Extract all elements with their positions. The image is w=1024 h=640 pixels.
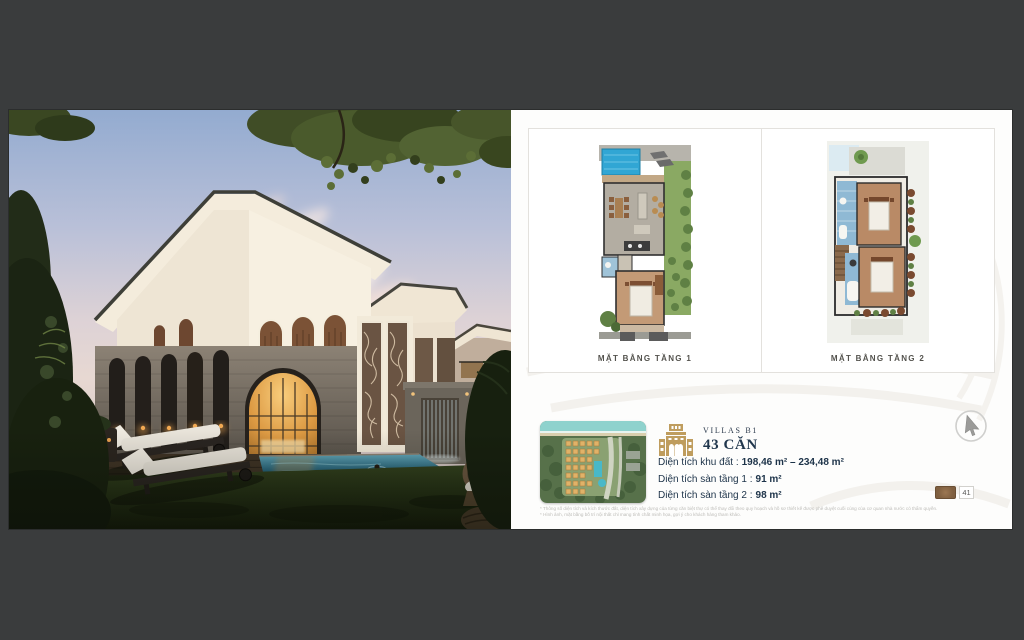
villa-photo-illustration	[9, 110, 511, 529]
brochure-slide: MẶT BẰNG TẦNG 1	[9, 110, 1012, 529]
floorplan-cell-2: MẶT BẰNG TẦNG 2	[761, 129, 994, 372]
disclaimer-line-2: * Hình ảnh, mặt bằng bố trí nội thất chỉ…	[540, 512, 1000, 518]
masterplan-thumbnail-image	[540, 421, 646, 503]
villa-series-label: VILLAS B1	[703, 426, 758, 435]
floorplan-level2-image[interactable]	[827, 141, 929, 343]
spec-row-floor1-area: Diện tích sàn tầng 1 :91 m²	[658, 474, 844, 485]
floorplan-level1-image[interactable]	[594, 141, 696, 343]
spec-row-floor2-area: Diện tích sàn tầng 2 :98 m²	[658, 490, 844, 501]
villa-exterior-photo[interactable]	[9, 110, 511, 529]
floorplans-box: MẶT BẰNG TẦNG 1	[528, 128, 995, 373]
floorplan-level2-label: MẶT BẰNG TẦNG 2	[762, 354, 994, 363]
villa-title-block: VILLAS B1 43 CĂN	[658, 423, 758, 456]
spec-label: Diện tích sàn tầng 1 :	[658, 474, 753, 485]
page-thumbnail-icon	[935, 486, 956, 499]
spec-value: 98 m²	[756, 490, 782, 501]
spec-label: Diện tích khu đất :	[658, 457, 739, 468]
screen: { "plans": { "floor1_label": "MẶT BẰNG T…	[0, 0, 1024, 640]
spec-value: 198,46 m² – 234,48 m²	[742, 457, 844, 468]
villa-units-label: 43 CĂN	[703, 437, 758, 454]
spec-label: Diện tích sàn tầng 2 :	[658, 490, 753, 501]
page-number: 41	[959, 486, 974, 499]
spec-value: 91 m²	[756, 474, 782, 485]
villa-specs: Diện tích khu đất :198,46 m² – 234,48 m²…	[658, 457, 844, 507]
page-number-badge: 41	[935, 486, 974, 499]
villa-facade-icon	[658, 423, 694, 456]
floorplan-cell-1: MẶT BẰNG TẦNG 1	[529, 129, 761, 372]
floorplan-panel: MẶT BẰNG TẦNG 1	[511, 110, 1012, 529]
floorplan-level1-label: MẶT BẰNG TẦNG 1	[529, 354, 761, 363]
spec-row-land-area: Diện tích khu đất :198,46 m² – 234,48 m²	[658, 457, 844, 468]
masterplan-thumbnail[interactable]	[540, 421, 646, 503]
disclaimer-block: * Thông số diện tích và kích thước đất, …	[540, 506, 1000, 518]
